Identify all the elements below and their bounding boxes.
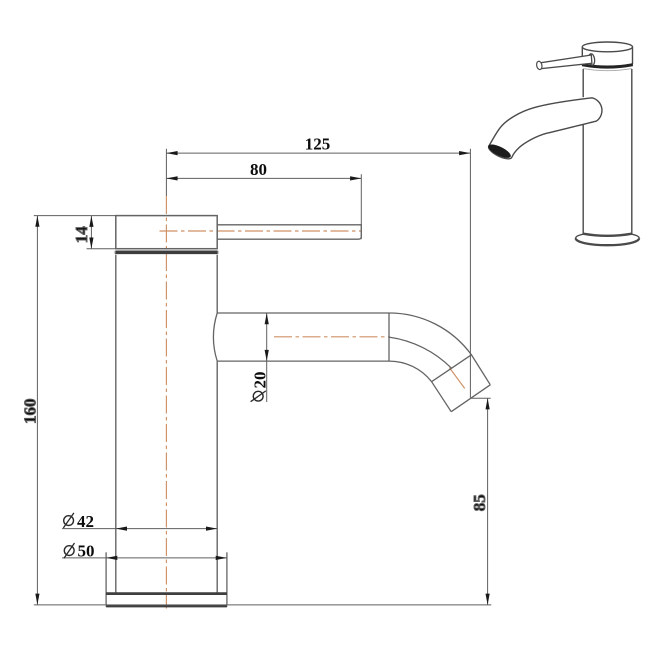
svg-text:125: 125	[305, 134, 331, 153]
svg-text:160: 160	[20, 399, 39, 425]
svg-text:20: 20	[251, 372, 270, 389]
svg-text:14: 14	[72, 226, 91, 244]
svg-text:80: 80	[250, 160, 267, 179]
svg-text:42: 42	[77, 512, 94, 531]
svg-text:50: 50	[78, 542, 95, 561]
svg-text:85: 85	[470, 494, 489, 511]
